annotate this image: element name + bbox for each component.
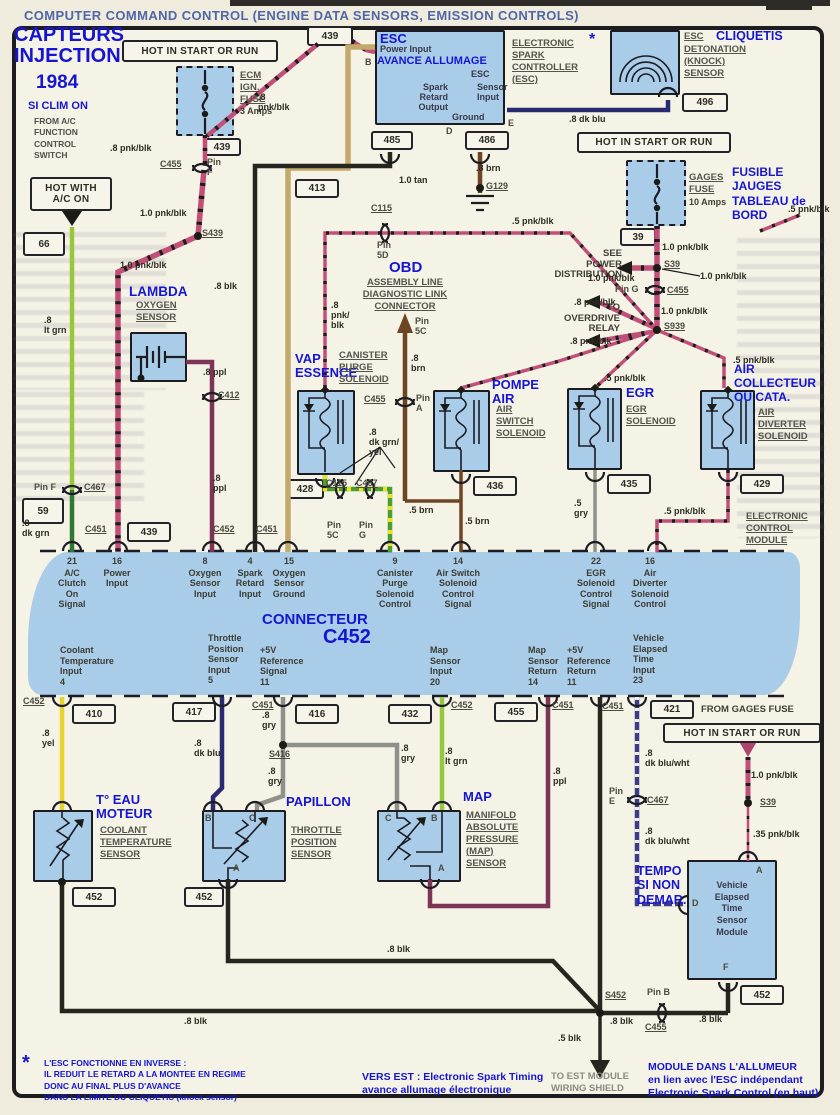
connector-c115-5d: C115 <box>371 203 392 213</box>
connector-c455-g: C455 <box>667 285 689 295</box>
air-diverter-label: AIR DIVERTER SOLENOID <box>758 407 808 443</box>
pin-b-label: Pin B <box>647 987 670 997</box>
wire-label: .8 ppl <box>203 367 227 377</box>
oxygen-sensor-label: OXYGEN SENSOR <box>136 300 177 324</box>
footnote-star: * <box>22 1052 30 1074</box>
terminal-429: 429 <box>740 474 784 494</box>
splice-s939: S939 <box>664 321 685 331</box>
annotation-year: 1984 <box>36 72 78 93</box>
terminal-452-b: 452 <box>184 887 224 907</box>
band-pin-tps: Throttle Position Sensor Input 5 <box>208 633 244 686</box>
gages-fuse-amps: 10 Amps <box>689 197 726 207</box>
esc-sensor-input-label: Sensor Input <box>477 82 508 102</box>
terminal-435: 435 <box>607 474 651 494</box>
terminal-496: 496 <box>682 93 728 112</box>
terminal-432: 432 <box>388 704 432 724</box>
wire-label: .8 gry <box>268 766 282 786</box>
connector-c452-3: C452 <box>451 700 473 710</box>
annotation-pompe: POMPE AIR <box>492 378 539 405</box>
wire-label: 1.0 pnk/blk <box>751 770 798 780</box>
esc-pin-d: D <box>446 126 453 136</box>
wire-label: .8 lt grn <box>445 746 468 766</box>
wire-label: .5 pnk/blk <box>512 216 554 226</box>
terminal-416: 416 <box>295 704 339 724</box>
annotation-lambda: LAMBDA <box>129 284 188 299</box>
wire-label: .8 pnk/blk <box>110 143 152 153</box>
wire-label: .8 pnk/ blk <box>331 300 350 330</box>
coolant-sensor-box <box>33 810 93 882</box>
from-ac-label: FROM A/C FUNCTION CONTROL SWITCH <box>34 116 78 162</box>
ecm-ign-fuse-box <box>176 66 234 136</box>
annotation-capteurs: CAPTEURS INJECTION <box>14 25 124 67</box>
wire-label: .8 pnk/blk <box>258 92 290 112</box>
wire-label: .8 ppl <box>553 766 567 786</box>
wire-label: .8 dk blu/wht <box>645 826 690 846</box>
wire-label: .8 yel <box>42 728 55 748</box>
coolant-sensor-label: COOLANT TEMPERATURE SENSOR <box>100 825 172 861</box>
esc-controller-label: ELECTRONIC SPARK CONTROLLER (ESC) <box>512 38 578 86</box>
wire-label: .5 pnk/blk <box>733 355 775 365</box>
annotation-t-eau: T° EAU MOTEUR <box>96 793 152 822</box>
pin-a-label: Pin A <box>416 393 430 413</box>
wire-label: 1.0 pnk/blk <box>120 260 167 270</box>
wire-label: .8 blk <box>699 1014 722 1024</box>
footnote-module-note: MODULE DANS L'ALLUMEUR en lien avec l'ES… <box>648 1061 818 1100</box>
tps-box <box>202 810 286 882</box>
egr-solenoid-label: EGR SOLENOID <box>626 404 676 428</box>
band-pin-coolant: Coolant Temperature Input 4 <box>60 645 114 687</box>
wiring-diagram-page: COMPUTER COMMAND CONTROL (ENGINE DATA SE… <box>0 0 840 1115</box>
wire-label: .8 blk <box>387 944 410 954</box>
connector-c452-1: C452 <box>213 524 235 534</box>
wire-label: .8 blk <box>610 1016 633 1026</box>
pin-g2-label: Pin G <box>359 520 373 540</box>
band-pin-5v-sig: +5V Reference Signal 11 <box>260 645 304 687</box>
terminal-436: 436 <box>473 476 517 496</box>
wire-label: .8 brn <box>411 353 426 373</box>
map-pin-b: B <box>431 813 438 823</box>
terminal-452-a: 452 <box>72 887 116 907</box>
map-pin-c: C <box>385 813 392 823</box>
band-pin-22: 22EGR Solenoid Control Signal <box>566 556 626 610</box>
vets-pin-d: D <box>692 898 699 908</box>
oxygen-sensor-box <box>130 332 187 382</box>
annotation-si-clim: SI CLIM ON <box>28 100 88 112</box>
wire-label: .8 blk <box>214 281 237 291</box>
annotation-c452: C452 <box>323 626 371 648</box>
pin-f-label: Pin F <box>207 157 221 177</box>
knock-sensor-label: DETONATION (KNOCK) SENSOR <box>684 44 746 80</box>
splice-s39-b: S39 <box>760 797 776 807</box>
wire-label: .5 pnk/blk <box>604 373 646 383</box>
terminal-485: 485 <box>371 131 413 150</box>
footnote-vers-est: VERS EST : Electronic Spark Timing avanc… <box>362 1071 543 1097</box>
wire-label: .5 pnk/blk <box>664 506 706 516</box>
terminal-417: 417 <box>172 702 216 722</box>
terminal-66: 66 <box>23 232 65 256</box>
pin-e-label: Pin E <box>609 786 623 806</box>
wire-label: .5 blk <box>558 1033 581 1043</box>
pin-5d-label: Pin 5D <box>377 240 391 260</box>
terminal-455: 455 <box>494 702 538 722</box>
splice-s39: S39 <box>664 259 680 269</box>
egr-solenoid-box <box>567 388 622 470</box>
scan-artifact-nub <box>766 0 812 10</box>
scan-artifact-strip <box>230 0 830 6</box>
wire-label: .5 gry <box>574 498 588 518</box>
hot-with-ac-box: HOT WITH A/C ON <box>30 177 112 211</box>
to-est-label: TO EST MODULE WIRING SHIELD <box>551 1071 629 1096</box>
pin-5c-label: Pin 5C <box>415 316 429 336</box>
vets-module-label: Vehicle Elapsed Time Sensor Module <box>689 880 775 938</box>
annotation-tempo: TEMPO SI NON DEMAR. <box>637 864 686 907</box>
connector-c455-f: C455 <box>160 159 182 169</box>
wire-label: .8 gry <box>401 743 415 763</box>
ground-g129: G129 <box>486 181 508 191</box>
connector-c451-1: C451 <box>85 524 107 534</box>
vets-pin-a: A <box>756 865 763 875</box>
ecm-label: ELECTRONIC CONTROL MODULE <box>746 511 808 547</box>
wire-label: .8 brn <box>476 163 501 173</box>
wire-label: 1.0 pnk/blk <box>140 208 187 218</box>
to-overdrive-label: TO OVERDRIVE RELAY <box>540 303 620 335</box>
annotation-papillon: PAPILLON <box>286 795 351 810</box>
band-pin-16: 16Power Input <box>87 556 147 589</box>
connector-c467-f: C467 <box>84 482 106 492</box>
wire-label: .8 pnk/blk <box>574 297 616 307</box>
annotation-map: MAP <box>463 790 492 805</box>
connector-c451-5: C451 <box>602 701 624 711</box>
aldl-label: ASSEMBLY LINE DIAGNOSTIC LINK CONNECTOR <box>352 277 458 313</box>
air-switch-solenoid-box <box>433 390 490 472</box>
tps-label: THROTTLE POSITION SENSOR <box>291 825 342 861</box>
terminal-413: 413 <box>295 179 339 198</box>
band-pin-vets: Vehicle Elapsed Time Input 23 <box>633 633 668 686</box>
wire-label: .8 pnk/blk <box>570 336 612 346</box>
esc-power-input-label: Power Input <box>380 44 432 54</box>
splice-s452: S452 <box>605 990 626 1000</box>
pin-g-label: Pin G <box>615 284 639 294</box>
esc-ground-label: Ground <box>452 112 485 122</box>
terminal-410: 410 <box>72 704 116 724</box>
connector-c451-2: C451 <box>256 524 278 534</box>
annotation-cliquetis: CLIQUETIS <box>716 29 783 43</box>
connector-c455-a: C455 <box>364 394 386 404</box>
gages-fuse-label: GAGES FUSE <box>689 172 723 196</box>
esc-spark-retard-label: Spark Retard Output <box>408 82 448 112</box>
band-pin-14: 14Air Switch Solenoid Control Signal <box>426 556 490 610</box>
wire-label: .8 ppl <box>213 473 227 493</box>
terminal-428: 428 <box>286 479 324 499</box>
knock-esc-label: ESC <box>684 31 704 43</box>
map-sensor-label: MANIFOLD ABSOLUTE PRESSURE (MAP) SENSOR <box>466 810 518 869</box>
esc-pin-b: B <box>365 57 372 67</box>
hot-in-start-box-3: HOT IN START OR RUN <box>663 723 821 743</box>
connector-c467-e: C467 <box>647 795 669 805</box>
band-pin-15: 15Oxygen Sensor Ground <box>259 556 319 599</box>
terminal-421: 421 <box>650 700 694 719</box>
band-pin-16b: 16Air Diverter Solenoid Control <box>620 556 680 610</box>
annotation-star: * <box>589 31 595 49</box>
terminal-439-b: 439 <box>127 522 171 542</box>
wire-label: .35 pnk/blk <box>753 829 800 839</box>
band-pin-map-in: Map Sensor Input 20 <box>430 645 461 687</box>
wire-label: .8 dk blu <box>194 738 221 758</box>
annotation-obd: OBD <box>389 260 422 277</box>
pin-f2-label: Pin F <box>34 482 56 492</box>
wire-label: .8 gry <box>262 710 276 730</box>
knock-sensor-box <box>610 30 680 95</box>
esc-pin-e: E <box>508 118 514 128</box>
band-pin-5v-ret: +5V Reference Return 11 <box>567 645 611 687</box>
connector-c451-3: C451 <box>252 700 274 710</box>
terminal-439-top: 439 <box>307 26 353 46</box>
connector-c412: C412 <box>218 390 240 400</box>
terminal-452-c: 452 <box>740 985 784 1005</box>
wire-label: .5 brn <box>409 505 434 515</box>
wire-label: .8 dk grn/ yel <box>369 427 399 457</box>
page-title: COMPUTER COMMAND CONTROL (ENGINE DATA SE… <box>24 9 744 24</box>
esc-esc-label: ESC <box>471 69 490 79</box>
from-gages-label: FROM GAGES FUSE <box>701 705 794 716</box>
wire-label: .8 blk <box>184 1016 207 1026</box>
terminal-39: 39 <box>620 228 656 246</box>
connector-c455-b: C455 <box>645 1022 667 1032</box>
annotation-air-collecteur: AIR COLLECTEUR OU CATA. <box>734 363 816 404</box>
annotation-egr: EGR <box>626 386 654 401</box>
hot-in-start-box-1: HOT IN START OR RUN <box>122 40 278 62</box>
wire-label: .5 pnk/blk <box>788 204 830 214</box>
splice-s439: S439 <box>202 228 223 238</box>
connector-c115-b: C115 <box>326 478 347 488</box>
annotation-avance: AVANCE ALLUMAGE <box>377 55 487 67</box>
terminal-439-a: 439 <box>203 138 241 156</box>
connector-c452-2: C452 <box>23 696 45 706</box>
wire-label: .5 brn <box>465 516 490 526</box>
terminal-486: 486 <box>465 131 509 150</box>
wire-label: 1.0 tan <box>399 175 428 185</box>
tps-pin-a: A <box>233 863 240 873</box>
pin-5c2-label: Pin 5C <box>327 520 341 540</box>
vets-pin-f: F <box>723 962 729 972</box>
wire-label: 1.0 pnk/blk <box>588 273 635 283</box>
footnote-esc-note: L'ESC FONCTIONNE EN INVERSE : IL REDUIT … <box>44 1058 246 1104</box>
hot-in-start-box-2: HOT IN START OR RUN <box>577 132 731 153</box>
connector-c467-b: C467 <box>356 478 378 488</box>
band-pin-9: 9Canister Purge Solenoid Control <box>365 556 425 610</box>
tps-pin-b: B <box>205 813 212 823</box>
splice-s416: S416 <box>269 749 290 759</box>
wire-label: .8 lt grn <box>44 315 67 335</box>
canister-purge-solenoid-box <box>297 390 355 475</box>
wire-label: 1.0 pnk/blk <box>662 242 709 252</box>
connector-c451-4: C451 <box>552 700 574 710</box>
wire-label: 1.0 pnk/blk <box>700 271 747 281</box>
map-pin-a: A <box>438 863 445 873</box>
canister-label: CANISTER PURGE SOLENOID <box>339 350 389 386</box>
wire-label: .8 dk blu <box>569 114 606 124</box>
tps-pin-c: C <box>249 813 256 823</box>
gages-fuse-box <box>626 160 686 226</box>
air-switch-label: AIR SWITCH SOLENOID <box>496 404 546 440</box>
wire-label: .8 dk blu/wht <box>645 748 690 768</box>
band-pin-map-ret: Map Sensor Return 14 <box>528 645 559 687</box>
wire-label: 1.0 pnk/blk <box>661 306 708 316</box>
wire-label: .8 dk grn <box>22 518 50 538</box>
